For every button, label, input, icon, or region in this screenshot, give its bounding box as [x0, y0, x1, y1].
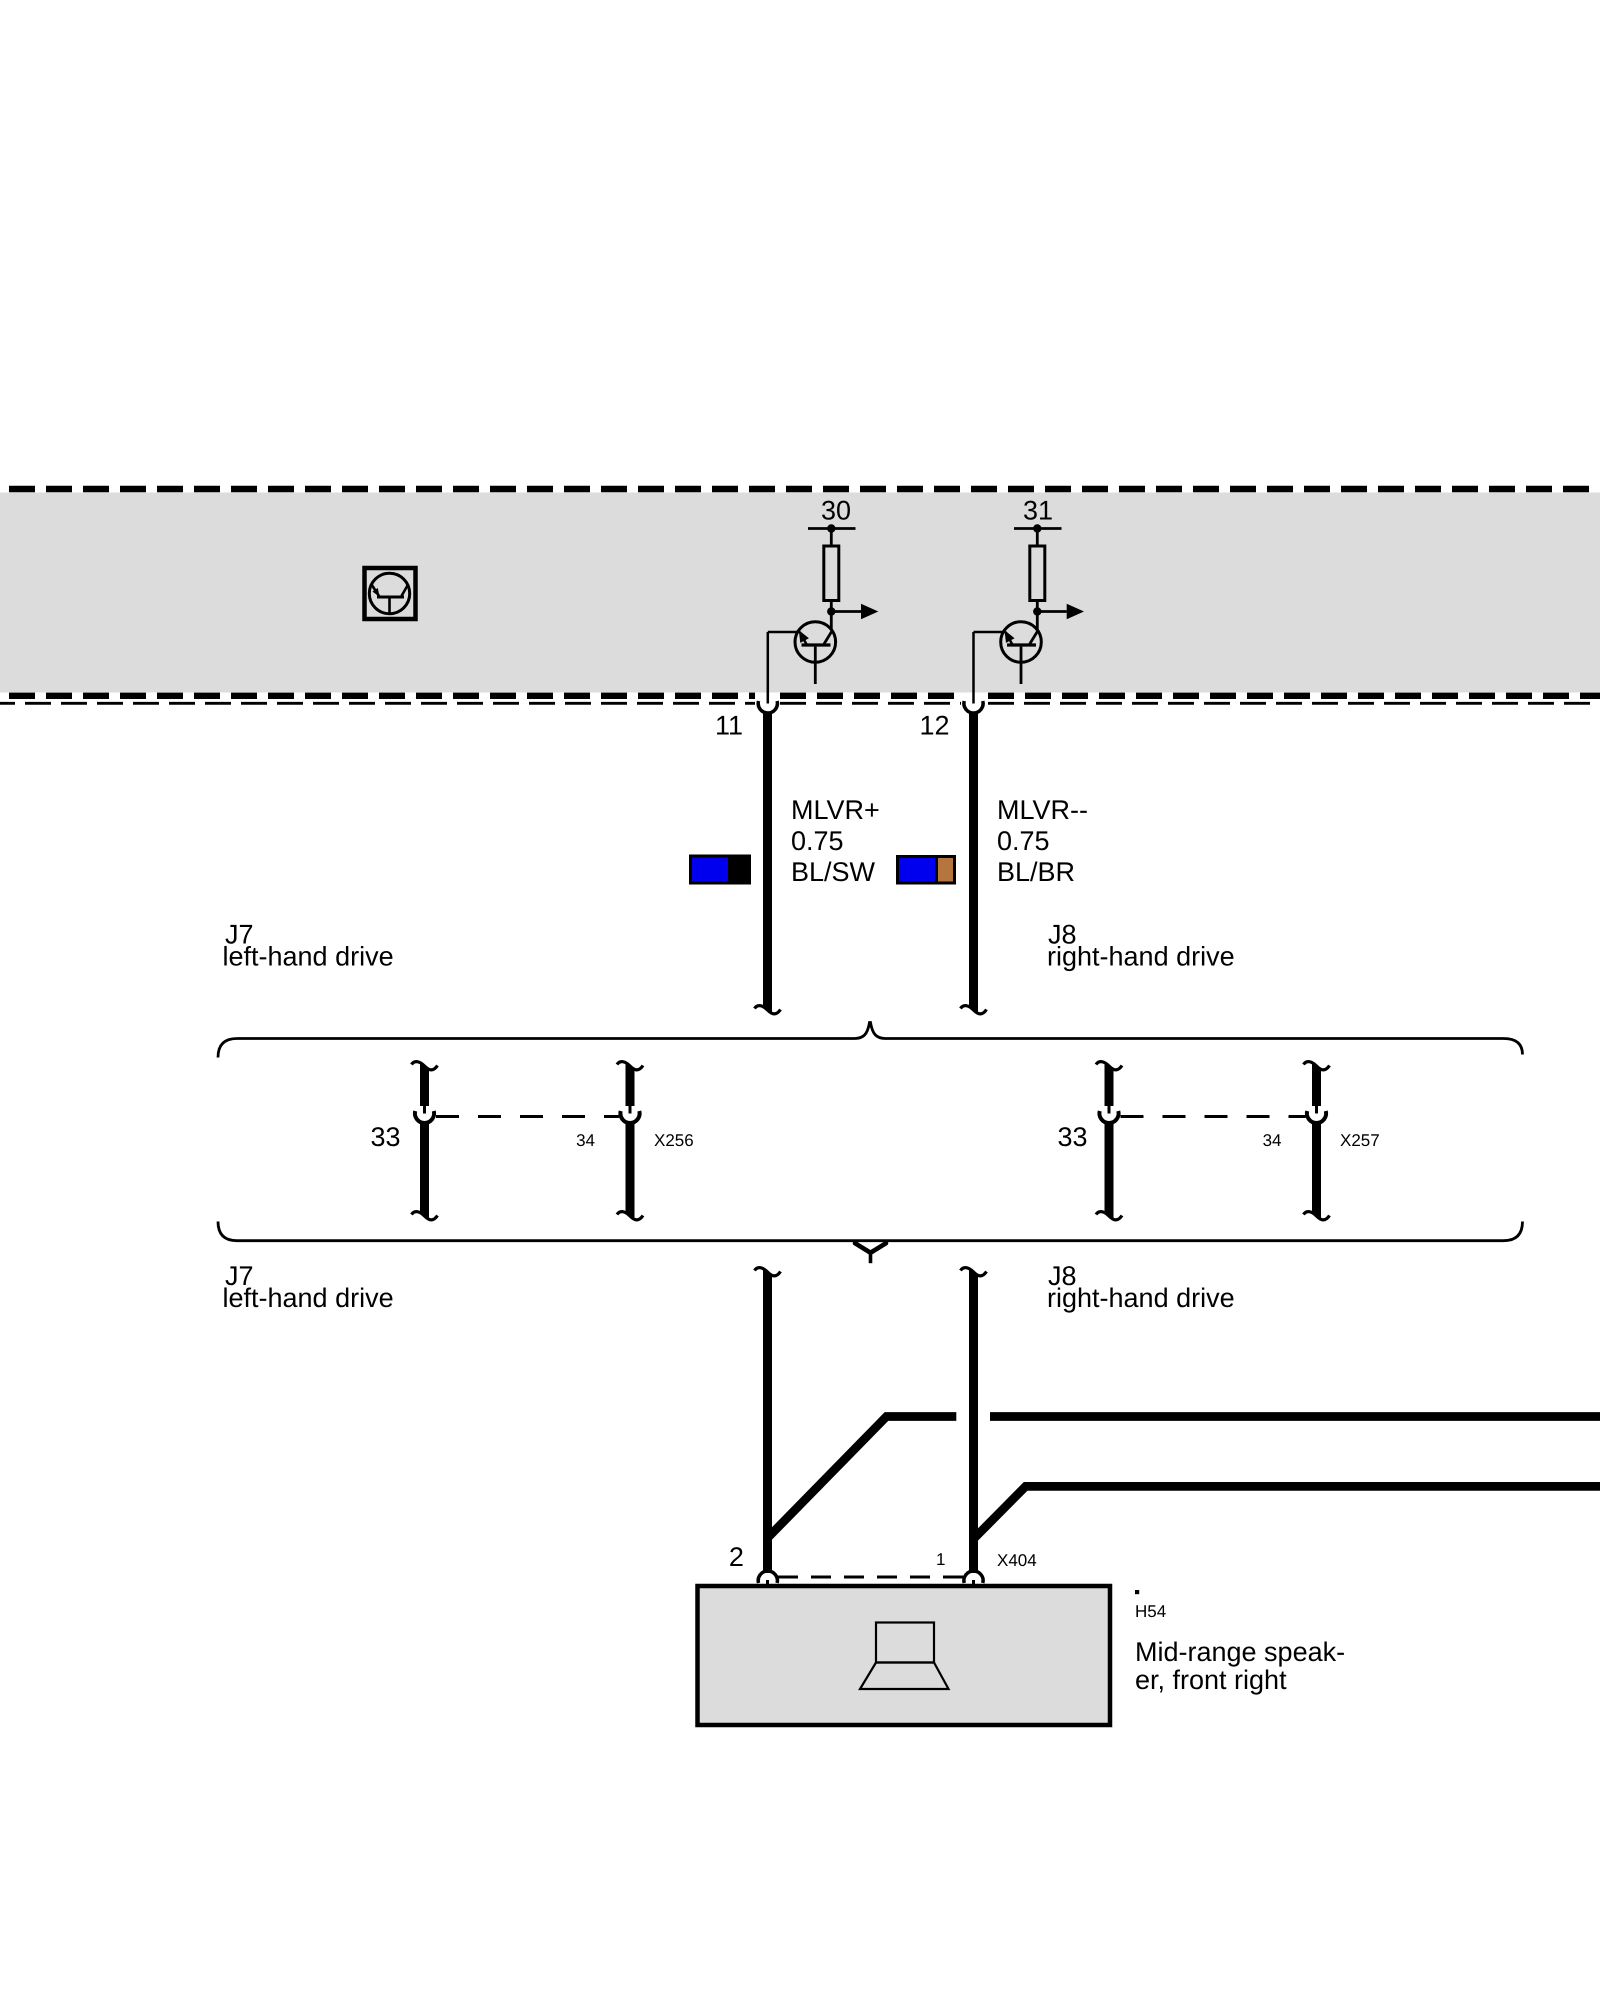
svg-text:30: 30 [821, 496, 851, 526]
svg-text:0.75: 0.75 [997, 826, 1050, 856]
svg-text:X256: X256 [654, 1131, 694, 1150]
svg-text:er, front right: er, front right [1135, 1665, 1287, 1695]
svg-text:34: 34 [576, 1131, 595, 1150]
svg-text:MLVR--: MLVR-- [997, 795, 1088, 825]
svg-text:H54: H54 [1135, 1602, 1166, 1621]
svg-text:BL/SW: BL/SW [791, 857, 876, 887]
svg-text:34: 34 [1263, 1131, 1282, 1150]
svg-text:1: 1 [936, 1550, 945, 1569]
svg-text:X257: X257 [1340, 1131, 1380, 1150]
svg-text:right-hand drive: right-hand drive [1047, 1283, 1235, 1313]
svg-text:12: 12 [919, 711, 949, 741]
svg-text:11: 11 [715, 711, 743, 741]
svg-text:31: 31 [1023, 496, 1053, 526]
svg-text:0.75: 0.75 [791, 826, 844, 856]
svg-text:left-hand drive: left-hand drive [223, 942, 394, 972]
svg-text:MLVR+: MLVR+ [791, 795, 880, 825]
svg-text:33: 33 [370, 1122, 400, 1152]
svg-text:left-hand drive: left-hand drive [223, 1283, 394, 1313]
svg-text:Mid-range speak-: Mid-range speak- [1135, 1637, 1345, 1667]
svg-text:BL/BR: BL/BR [997, 857, 1075, 887]
svg-text:33: 33 [1057, 1122, 1087, 1152]
svg-text:2: 2 [729, 1542, 744, 1572]
svg-text:right-hand drive: right-hand drive [1047, 942, 1235, 972]
svg-text:X404: X404 [997, 1551, 1037, 1570]
